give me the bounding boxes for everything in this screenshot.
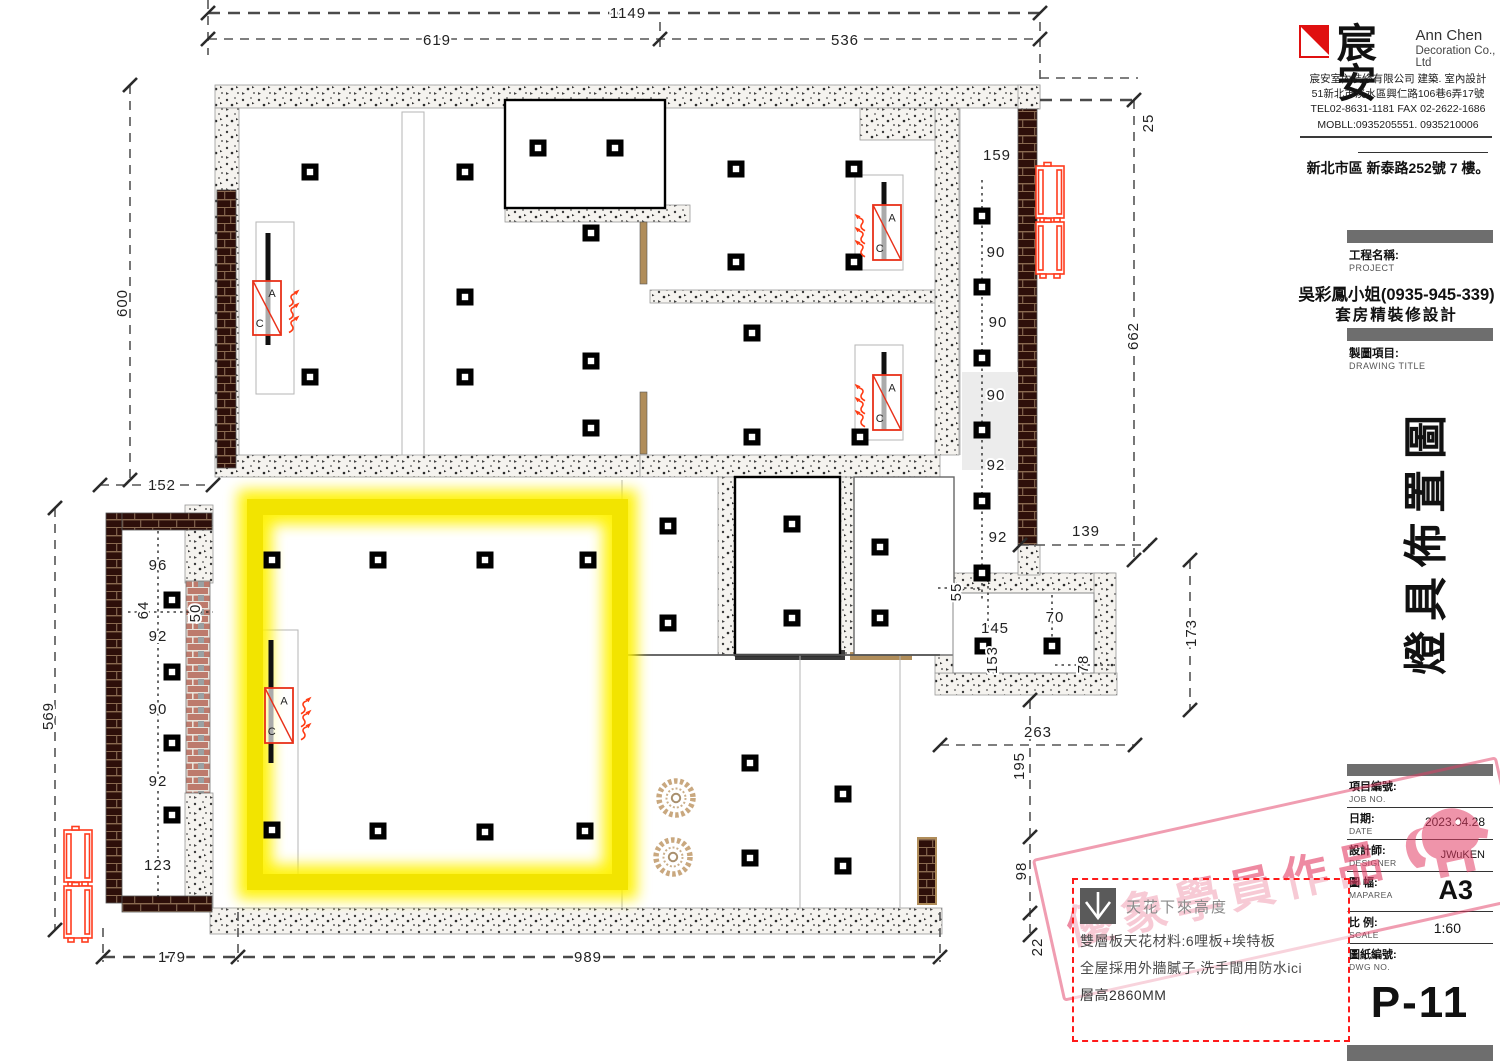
downlight-icon xyxy=(264,822,281,839)
dimension-label: 159 xyxy=(983,147,1011,164)
dimension-label: 92 xyxy=(987,457,1006,474)
downlight-icon xyxy=(1044,638,1061,655)
downlight-icon xyxy=(583,353,600,370)
note-header: 天花下來高度 xyxy=(1080,888,1348,924)
company-address: 51新北市淡水區興仁路106巷6弄17號 xyxy=(1298,87,1498,102)
company-mobile: MOBLL:0935205551. 0935210006 xyxy=(1298,118,1498,133)
date-value: 2023.04.28 xyxy=(1425,815,1485,829)
dimension-label: 90 xyxy=(987,387,1006,404)
airflow-icon xyxy=(855,214,866,257)
downlight-icon xyxy=(974,422,991,439)
divider xyxy=(1300,136,1492,138)
downlight-icon xyxy=(370,823,387,840)
dwg-no-value: P-11 xyxy=(1349,978,1491,1028)
downlight-icon xyxy=(974,350,991,367)
downlight-icon xyxy=(728,254,745,271)
ac-outdoor-unit-icon xyxy=(1036,163,1064,223)
dimension-label: 92 xyxy=(149,773,168,790)
drawing-sheet: ACACACAC 1149619536600152569179989256621… xyxy=(0,0,1500,1061)
dimension-label: 92 xyxy=(149,628,168,645)
downlight-icon xyxy=(835,858,852,875)
dimension-label: 92 xyxy=(989,529,1008,546)
downlight-icon xyxy=(852,429,869,446)
dimension-label: 662 xyxy=(1125,322,1142,350)
downlight-icon xyxy=(477,824,494,841)
ac-label-c: C xyxy=(256,318,264,330)
downlight-icon xyxy=(457,289,474,306)
downlight-icon xyxy=(872,539,889,556)
dimension-label: 90 xyxy=(989,314,1008,331)
ac-label-a: A xyxy=(888,383,896,395)
downlight-icon xyxy=(583,420,600,437)
field-job-no: 項目編號: JOB NO. xyxy=(1347,776,1493,808)
downlight-icon xyxy=(164,664,181,681)
downlight-icon xyxy=(974,493,991,510)
dimension-label: 98 xyxy=(1013,862,1030,881)
ac-indoor-unit: AC xyxy=(855,352,902,430)
dimension-label: 25 xyxy=(1140,114,1157,133)
downlight-icon xyxy=(846,254,863,271)
downlight-icon xyxy=(477,552,494,569)
downlight-icon xyxy=(784,610,801,627)
dimension-label: 152 xyxy=(148,477,176,494)
downlight-icon xyxy=(370,552,387,569)
fields-top-bar xyxy=(1347,764,1493,776)
downlight-icon xyxy=(164,807,181,824)
dimension-label: 145 xyxy=(981,620,1009,637)
dimension-label: 619 xyxy=(423,32,451,49)
ac-label-a: A xyxy=(268,288,276,300)
cove-light-band xyxy=(255,507,620,882)
downlight-icon xyxy=(457,369,474,386)
ceiling-note-box: 天花下來高度 雙層板天花材料:6哩板+埃特板 全屋採用外牆膩子,洗手間用防水ic… xyxy=(1072,878,1350,1042)
ac-label-c: C xyxy=(268,726,276,738)
downlight-icon xyxy=(302,164,319,181)
downlight-icon xyxy=(607,140,624,157)
downlight-icon xyxy=(744,429,761,446)
dimension-label: 153 xyxy=(984,646,1001,674)
downlight-icon xyxy=(583,225,600,242)
downlight-icon xyxy=(457,164,474,181)
company-logo-icon xyxy=(1298,24,1329,60)
dimension-label: 173 xyxy=(1183,619,1200,647)
note-icon-label: 天花下來高度 xyxy=(1126,896,1228,917)
project-label: 工程名稱: PROJECT xyxy=(1349,247,1399,273)
ac-indoor-unit: AC xyxy=(253,233,300,345)
note-line-3: 層高2860MM xyxy=(1080,985,1344,1005)
downlight-icon xyxy=(974,565,991,582)
downlight-icon xyxy=(530,140,547,157)
title-block-fields: 項目編號: JOB NO. 日期: DATE 2023.04.28 設計師: D… xyxy=(1347,764,1493,1061)
dimension-label: 64 xyxy=(135,601,152,620)
company-name-en: Ann Chen xyxy=(1415,28,1500,45)
dimension-label: 22 xyxy=(1029,938,1046,957)
project-name: 套房精裝修設計 xyxy=(1293,303,1500,325)
round-decor-light-icon xyxy=(659,781,693,815)
project-section-bar xyxy=(1347,230,1493,243)
dimension-label: 90 xyxy=(987,244,1006,261)
downlight-icon xyxy=(580,552,597,569)
company-tel: TEL02-8631-1181 FAX 02-2622-1686 xyxy=(1298,102,1498,117)
downlight-icon xyxy=(660,615,677,632)
dimension-label: 536 xyxy=(831,32,859,49)
downlight-icon xyxy=(728,161,745,178)
downlight-icon xyxy=(164,735,181,752)
downlight-icon xyxy=(784,516,801,533)
downlight-icon xyxy=(846,161,863,178)
company-name-en2: Decoration Co., Ltd xyxy=(1415,45,1500,69)
round-decor-light-icon xyxy=(656,840,690,874)
note-line-1: 雙層板天花材料:6哩板+埃特板 xyxy=(1080,931,1344,951)
airflow-icon xyxy=(301,697,312,740)
dimension-label: 569 xyxy=(40,702,57,730)
airflow-icon xyxy=(855,384,866,427)
downlight-icon xyxy=(744,325,761,342)
scale-value: 1:60 xyxy=(1434,920,1461,936)
dimension-label: 123 xyxy=(144,857,172,874)
downlight-icon xyxy=(164,592,181,609)
dimension-label: 90 xyxy=(149,701,168,718)
ac-outdoor-unit-icon xyxy=(1036,219,1064,279)
field-scale: 比 例: SCALE 1:60 xyxy=(1347,912,1493,944)
ac-indoor-unit: AC xyxy=(855,182,902,260)
downlight-icon xyxy=(264,552,281,569)
field-map-area: 圖 幅: MAPAREA A3 xyxy=(1347,872,1493,912)
dimension-label: 50 xyxy=(187,604,204,623)
dimension-label: 179 xyxy=(158,949,186,966)
ac-outdoor-unit-icon xyxy=(64,883,92,943)
drawing-title-label: 製圖項目: DRAWING TITLE xyxy=(1349,345,1426,371)
map-area-value: A3 xyxy=(1438,875,1473,906)
field-date: 日期: DATE 2023.04.28 xyxy=(1347,808,1493,840)
downlight-icon xyxy=(302,369,319,386)
ac-indoor-unit: AC xyxy=(265,640,312,763)
drawing-title-vertical: 燈具佈置圖 xyxy=(1390,405,1454,675)
downlight-icon xyxy=(577,823,594,840)
note-line-2: 全屋採用外牆膩子,洗手間用防水ici xyxy=(1080,958,1344,978)
ac-label-a: A xyxy=(280,696,288,708)
dimension-label: 600 xyxy=(114,289,131,317)
ac-label-c: C xyxy=(876,413,884,425)
field-dwg-no: 圖紙編號: DWG NO. P-11 xyxy=(1347,944,1493,1045)
ac-label-c: C xyxy=(876,243,884,255)
dimension-label: 195 xyxy=(1011,752,1028,780)
ac-label-a: A xyxy=(888,213,896,225)
downlight-icon xyxy=(742,850,759,867)
site-address: 新北市區 新泰路252號 7 樓。 xyxy=(1298,158,1498,178)
ac-outdoor-unit-icon xyxy=(64,827,92,887)
dimension-label: 263 xyxy=(1024,724,1052,741)
dimension-label: 70 xyxy=(1046,609,1065,626)
company-info: 宸安室內裝修有限公司 建築. 室內設計 51新北市淡水區興仁路106巷6弄17號… xyxy=(1298,72,1498,133)
downlight-icon xyxy=(660,518,677,535)
dimension-label: 96 xyxy=(149,557,168,574)
downlight-icon xyxy=(872,610,889,627)
dimension-label: 78 xyxy=(1075,655,1092,674)
downlight-icon xyxy=(974,208,991,225)
drawing-section-bar xyxy=(1347,328,1493,341)
field-designer: 設計師: DESIGNER JWuKEN xyxy=(1347,840,1493,872)
dimension-label: 1149 xyxy=(610,5,646,22)
dimension-label: 55 xyxy=(948,583,965,602)
downlight-icon xyxy=(974,279,991,296)
dimension-label: 139 xyxy=(1072,523,1100,540)
ceiling-drop-arrow-icon xyxy=(1080,888,1116,924)
designer-value: JWuKEN xyxy=(1441,849,1485,861)
dimension-label: 989 xyxy=(574,949,602,966)
client-name: 吳彩鳳小姐(0935-945-339) xyxy=(1293,281,1500,305)
downlight-icon xyxy=(835,786,852,803)
company-line: 宸安室內裝修有限公司 建築. 室內設計 xyxy=(1298,72,1498,87)
downlight-icon xyxy=(742,755,759,772)
fields-bottom-bar xyxy=(1347,1045,1493,1061)
